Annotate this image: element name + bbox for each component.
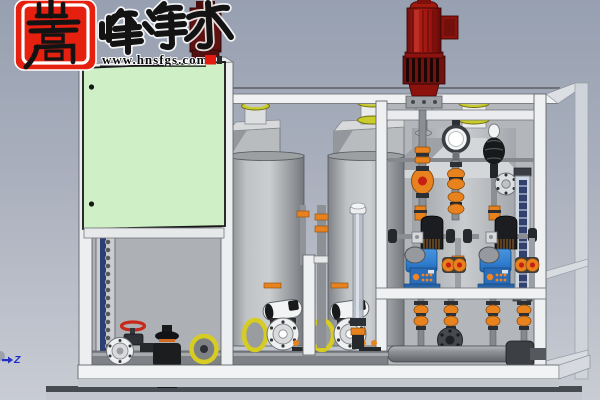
svg-text:www.hnsfgs.com: www.hnsfgs.com [102, 52, 208, 67]
svg-text:Z: Z [13, 354, 21, 366]
